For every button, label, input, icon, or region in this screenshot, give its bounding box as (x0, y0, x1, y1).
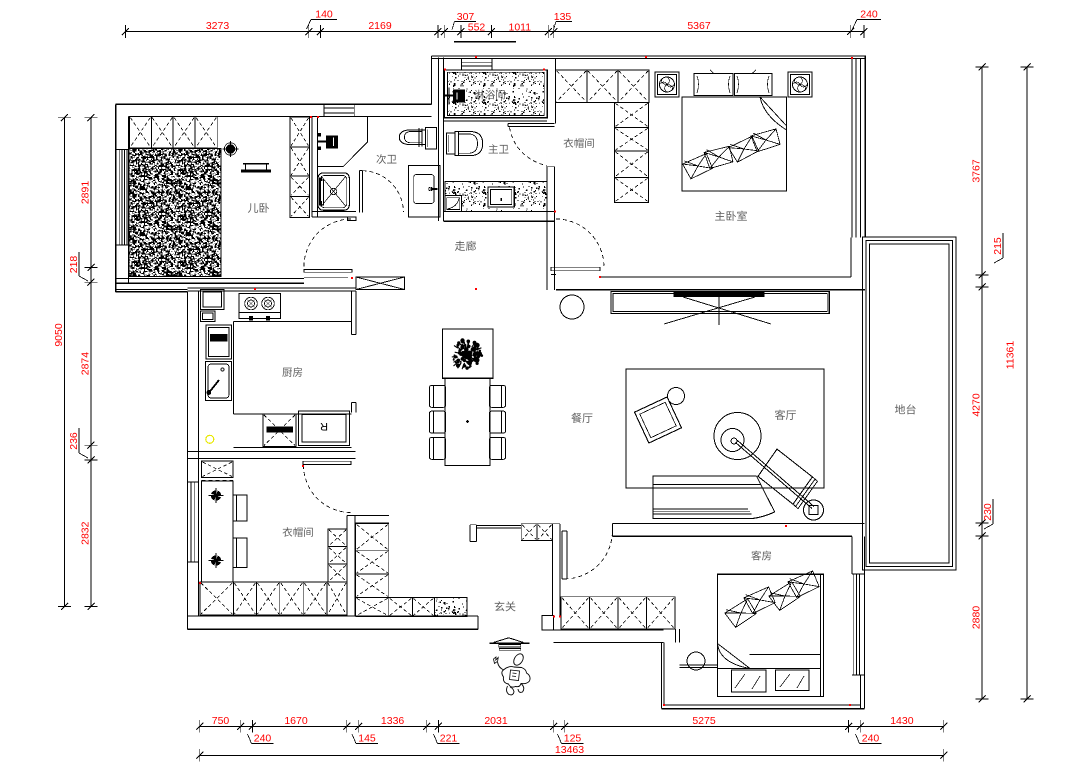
svg-text:240: 240 (860, 9, 878, 21)
svg-text:2832: 2832 (80, 521, 92, 545)
svg-text:145: 145 (358, 733, 376, 745)
svg-text:2874: 2874 (80, 352, 92, 376)
svg-text:240: 240 (862, 733, 880, 745)
svg-text:9050: 9050 (53, 323, 65, 347)
svg-text:2169: 2169 (368, 20, 392, 32)
svg-text:230: 230 (982, 503, 994, 521)
svg-text:R: R (320, 420, 328, 432)
svg-text:215: 215 (992, 237, 1004, 255)
svg-text:11361: 11361 (1005, 341, 1017, 370)
svg-text:3273: 3273 (206, 20, 230, 32)
svg-text:236: 236 (68, 432, 80, 450)
svg-text:2880: 2880 (971, 606, 983, 630)
svg-text:1430: 1430 (890, 715, 914, 727)
svg-text:552: 552 (468, 22, 486, 34)
svg-text:5275: 5275 (692, 715, 716, 727)
svg-text:1670: 1670 (284, 715, 308, 727)
svg-text:5367: 5367 (687, 20, 711, 32)
svg-text:2891: 2891 (80, 181, 92, 205)
svg-text:13463: 13463 (555, 744, 584, 756)
svg-text:1336: 1336 (381, 715, 405, 727)
svg-text:3767: 3767 (971, 159, 983, 183)
svg-text:750: 750 (212, 715, 230, 727)
svg-text:1011: 1011 (509, 22, 532, 34)
svg-text:125: 125 (564, 733, 582, 745)
svg-text:218: 218 (68, 256, 80, 274)
svg-text:140: 140 (315, 9, 333, 21)
svg-text:135: 135 (554, 11, 572, 23)
svg-text:240: 240 (254, 733, 272, 745)
svg-text:2031: 2031 (484, 715, 508, 727)
svg-text:221: 221 (440, 733, 458, 745)
svg-text:4270: 4270 (971, 393, 983, 417)
